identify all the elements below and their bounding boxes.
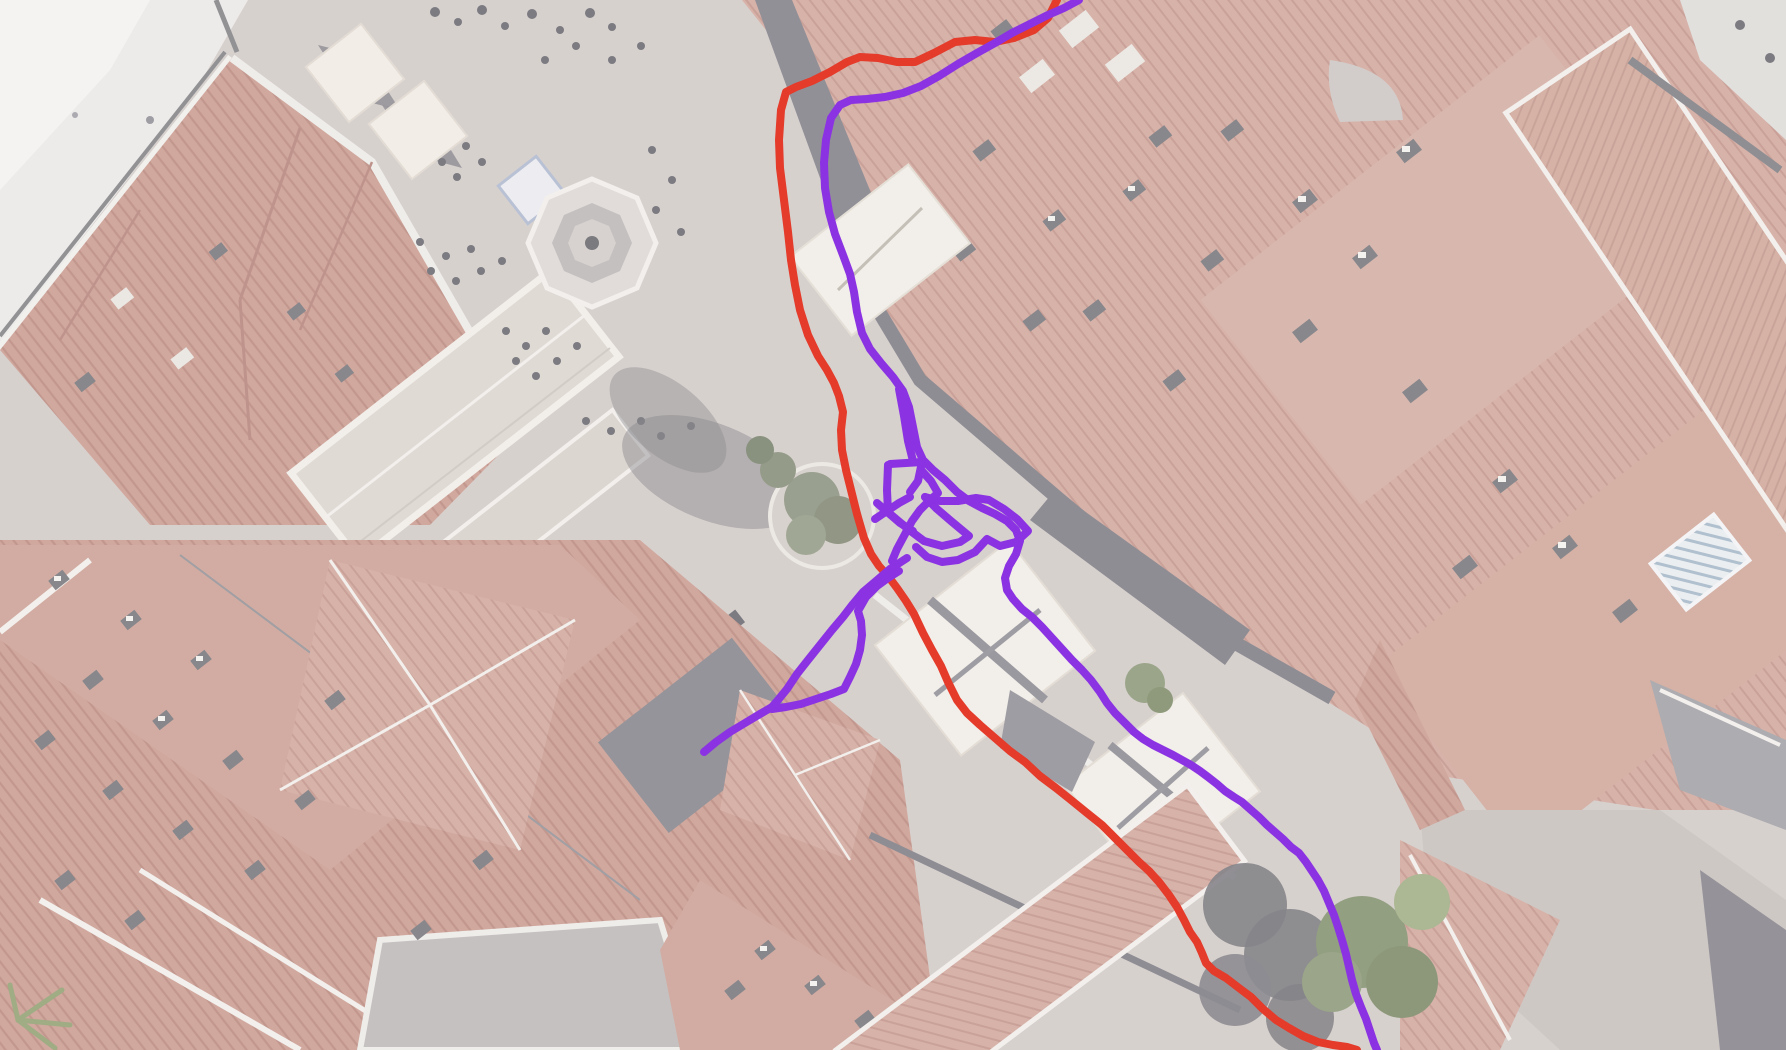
base-map	[0, 0, 1786, 1050]
aerial-map-canvas[interactable]	[0, 0, 1786, 1050]
gps-track-purple-scribble-2	[887, 465, 888, 512]
wash-overlay	[0, 0, 1786, 1050]
map-viewport[interactable]	[0, 0, 1786, 1050]
